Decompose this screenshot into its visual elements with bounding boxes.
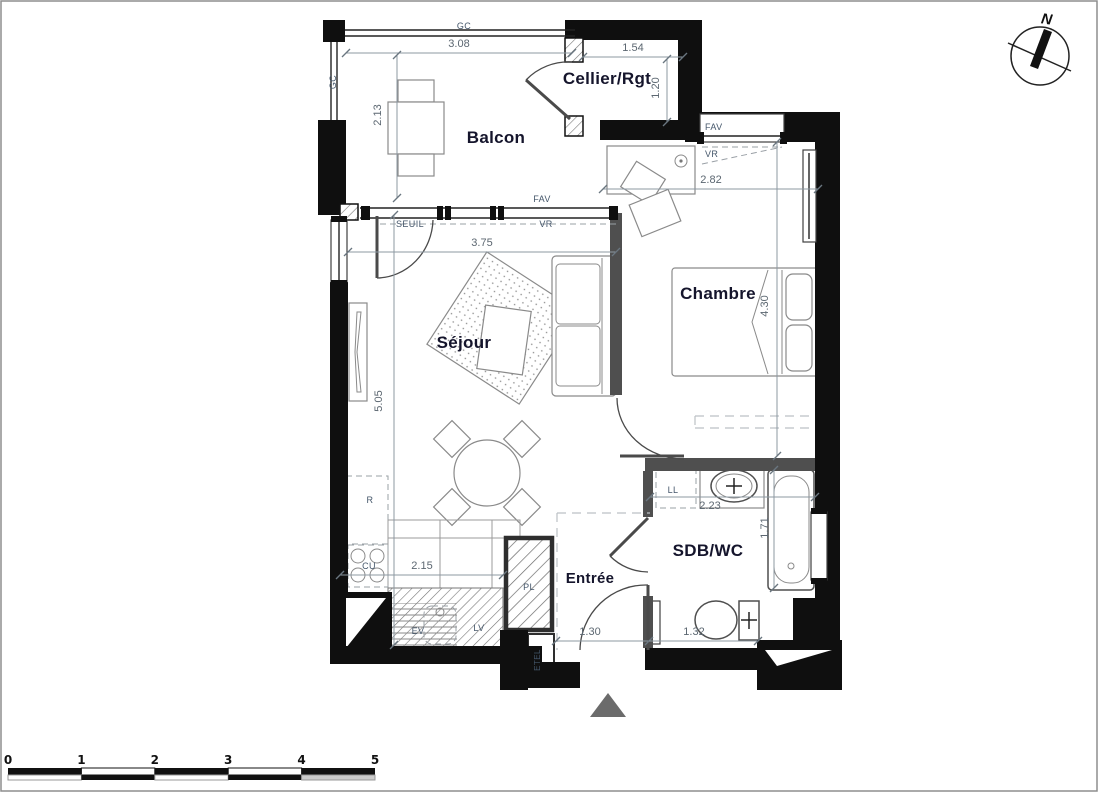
- floorplan-canvas: 3.08 1.54 2.13 1.20 2.82 3.75 5.05 4.30: [0, 0, 1099, 800]
- dim-text: 1.71: [759, 517, 771, 538]
- dim-text: 4.30: [759, 295, 771, 316]
- scale-tick: 0: [4, 753, 12, 767]
- sdb-window: [811, 508, 827, 584]
- dim-text: 5.05: [373, 390, 385, 411]
- room-label-sdb: SDB/WC: [673, 541, 744, 560]
- tag-etel: ETEL: [533, 649, 542, 671]
- dim-text: 3.75: [471, 237, 492, 249]
- tag-ll: LL: [668, 485, 679, 495]
- tag-gc-left: GC: [328, 75, 338, 89]
- room-label-sejour: Séjour: [437, 333, 492, 352]
- sofa-furniture: [552, 256, 616, 396]
- tag-fav-chambre: FAV: [705, 122, 723, 132]
- wall-jamb: [565, 116, 583, 136]
- radiator: [349, 303, 367, 401]
- room-label-balcon: Balcon: [467, 128, 525, 147]
- dim-text: 1.20: [650, 77, 662, 98]
- tag-pl: PL: [523, 582, 535, 592]
- tag-seuil: SEUIL: [396, 219, 424, 229]
- chambre-right-window: [803, 150, 816, 242]
- dim-text: 2.82: [700, 174, 721, 186]
- tag-fav-balcon: FAV: [533, 194, 551, 204]
- scale-tick: 3: [224, 753, 232, 767]
- tag-vr-chambre: VR: [705, 149, 718, 159]
- sejour-left-window: [331, 216, 347, 286]
- dim-text: 2.13: [372, 104, 384, 125]
- bathtub-fixture: [768, 470, 814, 590]
- tag-r: R: [367, 495, 374, 505]
- scale-tick: 4: [297, 753, 305, 767]
- dim-text: 1.54: [622, 42, 643, 54]
- dim-text: 2.15: [411, 560, 432, 572]
- scale-tick: 5: [371, 753, 379, 767]
- dim-text: 2.23: [699, 500, 720, 512]
- tag-ev: EV: [412, 626, 425, 636]
- room-label-cellier: Cellier/Rgt: [563, 69, 651, 88]
- tag-gc-top: GC: [457, 21, 471, 31]
- dim-text: 1.30: [579, 626, 600, 638]
- dim-text: 3.08: [448, 38, 469, 50]
- room-label-chambre: Chambre: [680, 284, 756, 303]
- scale-tick: 2: [151, 753, 159, 767]
- tag-lv: LV: [473, 623, 484, 633]
- room-label-entree: Entrée: [566, 570, 615, 587]
- floorplan-sheet: 3.08 1.54 2.13 1.20 2.82 3.75 5.05 4.30: [0, 0, 1099, 800]
- scale-tick: 1: [77, 753, 85, 767]
- tag-vr-sejour: VR: [539, 219, 552, 229]
- dim-text: 1.32: [683, 626, 704, 638]
- wall-jamb: [565, 38, 583, 62]
- tag-cu: CU: [362, 561, 376, 571]
